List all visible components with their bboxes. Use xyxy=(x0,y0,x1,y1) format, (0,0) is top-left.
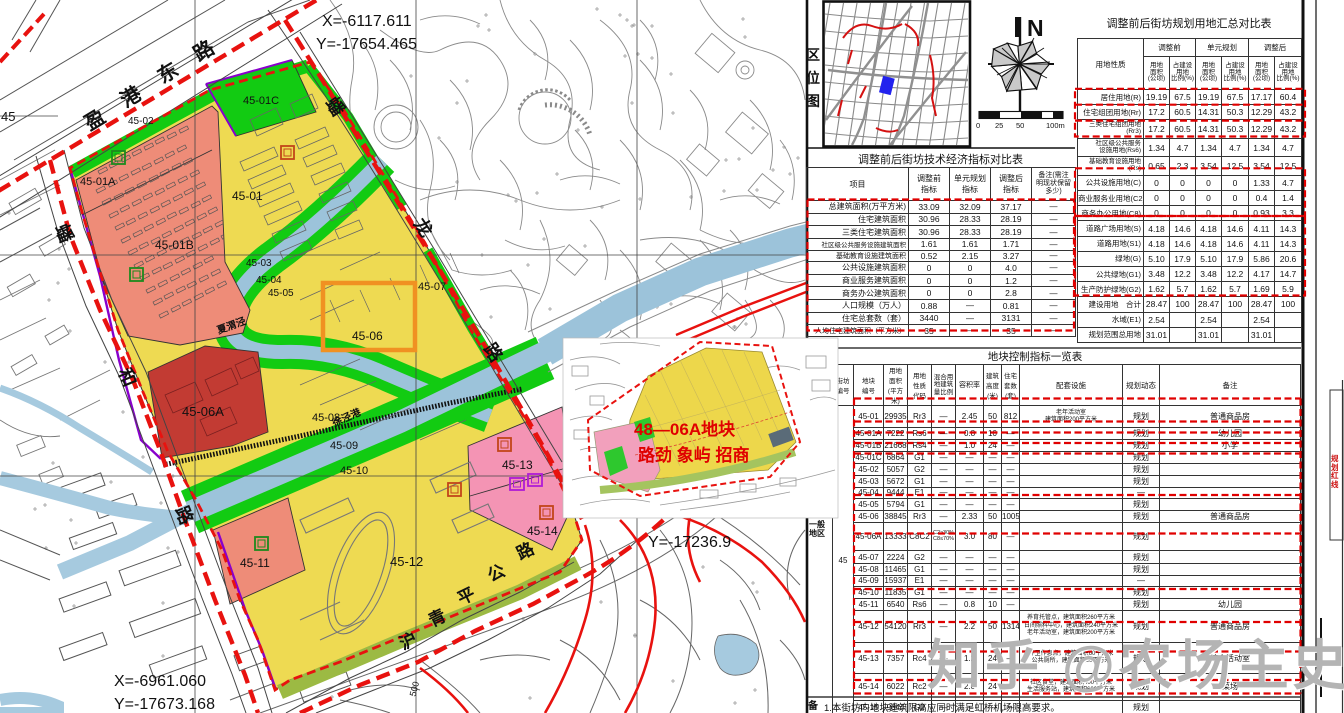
svg-text:X=-6961.060: X=-6961.060 xyxy=(114,673,206,690)
svg-text:0: 0 xyxy=(976,121,980,130)
svg-text:45-06: 45-06 xyxy=(352,329,383,343)
svg-text:Y=-17654.465: Y=-17654.465 xyxy=(316,36,417,53)
svg-text:Y=-17673.168: Y=-17673.168 xyxy=(114,696,215,713)
svg-text:45-11: 45-11 xyxy=(240,556,270,570)
svg-text:45-04: 45-04 xyxy=(256,275,282,286)
svg-text:45-06A: 45-06A xyxy=(182,404,224,419)
svg-text:45-05: 45-05 xyxy=(268,288,294,299)
svg-text:500: 500 xyxy=(408,680,422,697)
svg-text:45-14: 45-14 xyxy=(527,524,558,538)
svg-text:45-02: 45-02 xyxy=(128,116,154,127)
svg-text:45-01A: 45-01A xyxy=(80,176,116,188)
svg-text:X=-6117.611: X=-6117.611 xyxy=(322,13,412,30)
svg-text:25: 25 xyxy=(995,121,1003,130)
svg-text:45-01B: 45-01B xyxy=(155,238,194,252)
svg-text:45-10: 45-10 xyxy=(340,465,368,477)
svg-text:N: N xyxy=(1027,15,1044,41)
svg-text:45-03: 45-03 xyxy=(246,258,272,269)
svg-text:45-01: 45-01 xyxy=(232,189,263,203)
svg-text:Y=-17236.9: Y=-17236.9 xyxy=(648,534,731,551)
svg-text:45-12: 45-12 xyxy=(390,554,423,569)
svg-text:45-13: 45-13 xyxy=(502,458,533,472)
svg-text:45-01C: 45-01C xyxy=(243,95,279,107)
svg-text:100m: 100m xyxy=(1046,121,1065,130)
svg-text:50: 50 xyxy=(1016,121,1024,130)
svg-text:45-09: 45-09 xyxy=(330,440,358,452)
svg-text:45: 45 xyxy=(1,109,15,124)
svg-text:45-07: 45-07 xyxy=(418,281,446,293)
